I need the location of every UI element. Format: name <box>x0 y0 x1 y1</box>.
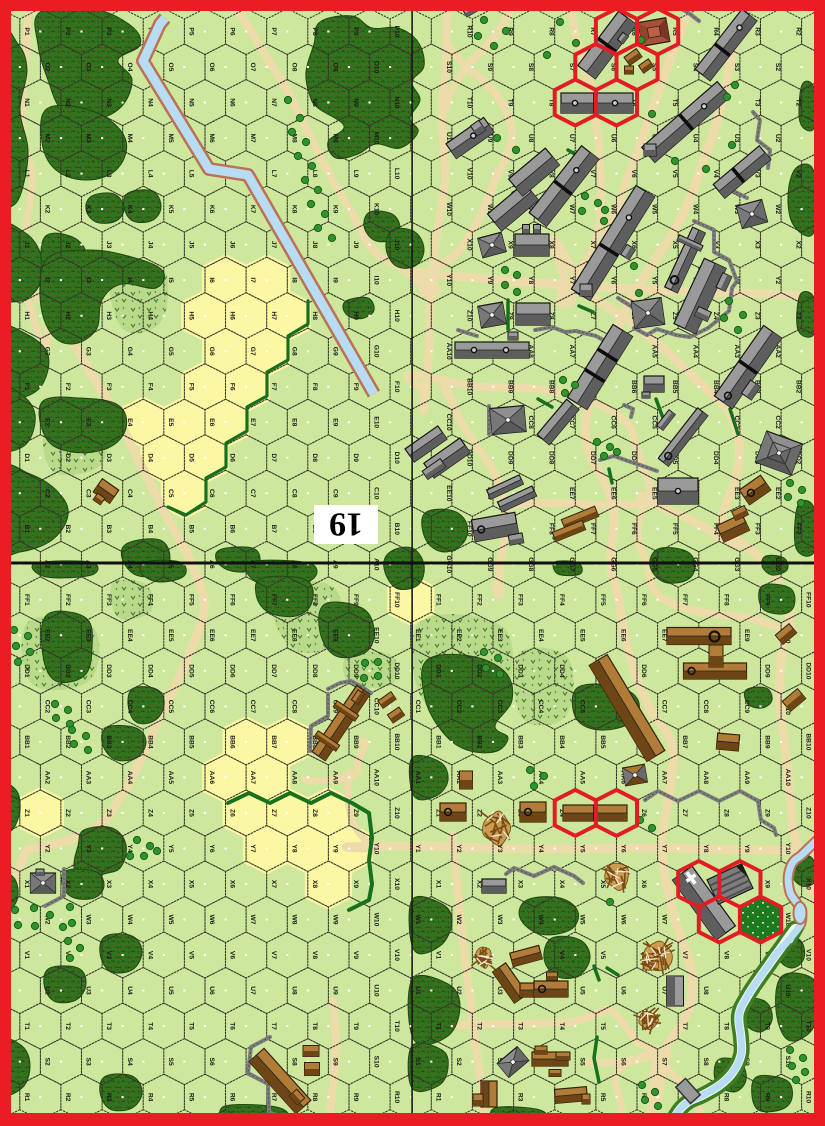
svg-text:X1: X1 <box>23 880 30 888</box>
svg-text:S10: S10 <box>373 1056 380 1068</box>
svg-text:W1: W1 <box>414 914 421 924</box>
svg-text:Y10: Y10 <box>373 843 380 855</box>
svg-text:Z7: Z7 <box>270 809 277 817</box>
svg-text:DD5: DD5 <box>187 664 194 678</box>
svg-text:DD7: DD7 <box>589 451 596 465</box>
svg-text:EE3: EE3 <box>733 487 740 500</box>
svg-text:V8: V8 <box>311 951 318 959</box>
svg-text:W5: W5 <box>578 914 585 924</box>
svg-text:N8: N8 <box>311 98 318 107</box>
svg-text:I4: I4 <box>126 277 133 283</box>
svg-text:C3: C3 <box>85 489 92 498</box>
svg-text:R4: R4 <box>712 27 719 36</box>
svg-text:AA9: AA9 <box>332 771 339 785</box>
svg-text:Y7: Y7 <box>661 844 668 852</box>
svg-text:DD4: DD4 <box>146 664 153 678</box>
svg-text:O5: O5 <box>167 63 174 72</box>
svg-text:X3: X3 <box>105 880 112 888</box>
svg-text:EE1: EE1 <box>414 629 421 642</box>
svg-text:S5: S5 <box>578 1058 585 1066</box>
svg-text:D8: D8 <box>311 453 318 462</box>
svg-text:U10: U10 <box>784 984 791 997</box>
svg-text:T4: T4 <box>146 1022 153 1030</box>
svg-text:AA6: AA6 <box>208 771 215 785</box>
svg-text:Y2: Y2 <box>774 276 781 284</box>
svg-text:FF3: FF3 <box>105 594 112 606</box>
svg-text:H8: H8 <box>311 311 318 320</box>
svg-text:U5: U5 <box>167 986 174 995</box>
svg-text:V5: V5 <box>671 170 678 178</box>
svg-text:R1: R1 <box>23 1093 30 1102</box>
svg-text:B10: B10 <box>393 523 400 536</box>
svg-text:S9: S9 <box>486 63 493 71</box>
svg-text:L1: L1 <box>23 170 30 178</box>
svg-text:EE4: EE4 <box>537 629 544 642</box>
svg-text:FF5: FF5 <box>671 523 678 535</box>
svg-text:H10: H10 <box>393 310 400 323</box>
svg-text:W10: W10 <box>445 202 452 216</box>
svg-text:X9: X9 <box>352 880 359 888</box>
svg-text:S2: S2 <box>455 1058 462 1066</box>
svg-text:DD4: DD4 <box>712 451 719 465</box>
svg-text:H3: H3 <box>105 311 112 320</box>
svg-text:K4: K4 <box>126 205 133 214</box>
svg-text:BB4: BB4 <box>558 735 565 749</box>
svg-text:D6: D6 <box>229 453 236 462</box>
svg-text:J8: J8 <box>311 241 318 249</box>
svg-text:P8: P8 <box>311 27 318 35</box>
svg-text:FF3: FF3 <box>753 523 760 535</box>
svg-text:U10: U10 <box>373 984 380 997</box>
svg-text:X9: X9 <box>764 880 771 888</box>
svg-text:W3: W3 <box>496 914 503 924</box>
svg-text:V7: V7 <box>681 951 688 959</box>
svg-text:CC6: CC6 <box>609 416 616 430</box>
svg-text:CC9: CC9 <box>743 700 750 714</box>
svg-text:W4: W4 <box>537 914 544 924</box>
svg-text:M5: M5 <box>167 133 174 143</box>
svg-text:Y8: Y8 <box>702 844 709 852</box>
svg-text:FF6: FF6 <box>229 594 236 606</box>
svg-text:E4: E4 <box>126 418 133 426</box>
svg-text:K2: K2 <box>44 205 51 214</box>
svg-text:W3: W3 <box>85 914 92 924</box>
svg-text:U3: U3 <box>496 986 503 995</box>
svg-text:D5: D5 <box>187 453 194 462</box>
svg-text:M2: M2 <box>44 133 51 143</box>
svg-text:DD10: DD10 <box>805 662 812 679</box>
svg-text:X5: X5 <box>187 880 194 888</box>
svg-text:C6: C6 <box>208 489 215 498</box>
svg-text:L5: L5 <box>187 170 194 178</box>
svg-text:O6: O6 <box>208 63 215 72</box>
svg-text:AA5: AA5 <box>651 345 658 359</box>
svg-text:R2: R2 <box>64 1093 71 1102</box>
svg-text:CC8: CC8 <box>702 700 709 714</box>
svg-text:V10: V10 <box>393 949 400 961</box>
svg-text:Y9: Y9 <box>486 276 493 284</box>
svg-text:T2: T2 <box>476 1022 483 1030</box>
svg-text:U9: U9 <box>332 986 339 995</box>
svg-text:U8: U8 <box>290 986 297 995</box>
svg-text:FF6: FF6 <box>640 594 647 606</box>
svg-text:W4: W4 <box>126 914 133 924</box>
svg-text:S3: S3 <box>733 63 740 71</box>
svg-text:R10: R10 <box>465 25 472 38</box>
svg-text:CC3: CC3 <box>85 700 92 714</box>
svg-text:Z6: Z6 <box>229 809 236 817</box>
svg-text:L7: L7 <box>270 170 277 178</box>
svg-text:EE9: EE9 <box>743 629 750 642</box>
svg-text:Y7: Y7 <box>568 276 575 284</box>
svg-text:X2: X2 <box>795 241 802 249</box>
svg-text:AA7: AA7 <box>568 345 575 359</box>
svg-text:W7: W7 <box>568 204 575 214</box>
svg-text:H4: H4 <box>146 311 153 320</box>
svg-text:B4: B4 <box>146 525 153 534</box>
svg-text:L10: L10 <box>393 168 400 180</box>
svg-text:Z5: Z5 <box>187 809 194 817</box>
svg-text:EE3: EE3 <box>85 629 92 642</box>
svg-text:C2: C2 <box>44 489 51 498</box>
svg-text:AA10: AA10 <box>445 343 452 360</box>
svg-text:S1: S1 <box>414 1058 421 1066</box>
svg-text:CC2: CC2 <box>455 700 462 714</box>
svg-text:D9: D9 <box>352 453 359 462</box>
svg-text:O9: O9 <box>332 63 339 72</box>
svg-text:EE9: EE9 <box>332 629 339 642</box>
svg-text:EE2: EE2 <box>44 629 51 642</box>
svg-text:X4: X4 <box>558 880 565 888</box>
svg-text:I3: I3 <box>85 277 92 283</box>
svg-text:DD2: DD2 <box>64 664 71 678</box>
svg-text:BB5: BB5 <box>599 735 606 749</box>
svg-text:U5: U5 <box>578 986 585 995</box>
svg-text:X6: X6 <box>229 880 236 888</box>
svg-text:B6: B6 <box>229 525 236 534</box>
svg-text:N1: N1 <box>23 98 30 107</box>
svg-text:S4: S4 <box>126 1058 133 1066</box>
svg-text:EE6: EE6 <box>208 629 215 642</box>
svg-text:H7: H7 <box>270 311 277 320</box>
svg-text:BB10: BB10 <box>465 378 472 395</box>
svg-text:CC7: CC7 <box>661 700 668 714</box>
svg-text:J5: J5 <box>187 241 194 249</box>
svg-text:R8: R8 <box>548 27 555 36</box>
svg-text:O7: O7 <box>249 63 256 72</box>
svg-text:AA3: AA3 <box>85 771 92 785</box>
svg-text:DD3: DD3 <box>517 664 524 678</box>
svg-text:T3: T3 <box>517 1022 524 1030</box>
svg-text:C9: C9 <box>332 489 339 498</box>
svg-text:T7: T7 <box>270 1022 277 1030</box>
svg-text:Y8: Y8 <box>527 276 534 284</box>
svg-text:Z10: Z10 <box>805 807 812 819</box>
svg-text:AA8: AA8 <box>702 771 709 785</box>
svg-text:R3: R3 <box>517 1093 524 1102</box>
svg-text:K5: K5 <box>167 205 174 214</box>
svg-text:DD10: DD10 <box>393 662 400 679</box>
svg-text:U6: U6 <box>208 986 215 995</box>
svg-text:F3: F3 <box>105 383 112 391</box>
svg-text:FF10: FF10 <box>393 592 400 608</box>
svg-text:J1: J1 <box>23 241 30 249</box>
svg-text:I2: I2 <box>44 277 51 283</box>
svg-text:DD3: DD3 <box>105 664 112 678</box>
svg-text:Y5: Y5 <box>651 276 658 284</box>
svg-text:Y6: Y6 <box>609 276 616 284</box>
svg-text:S5: S5 <box>167 1058 174 1066</box>
svg-text:EE6: EE6 <box>620 629 627 642</box>
svg-text:E6: E6 <box>208 418 215 426</box>
svg-text:EE5: EE5 <box>578 629 585 642</box>
svg-text:T5: T5 <box>671 99 678 107</box>
svg-text:G2: G2 <box>44 347 51 356</box>
svg-text:FF1: FF1 <box>23 594 30 606</box>
svg-text:D4: D4 <box>146 453 153 462</box>
svg-text:CC8: CC8 <box>527 416 534 430</box>
svg-text:P10: P10 <box>393 26 400 38</box>
svg-text:X8: X8 <box>311 880 318 888</box>
svg-text:CC6: CC6 <box>208 700 215 714</box>
svg-text:Y8: Y8 <box>290 844 297 852</box>
svg-text:T9: T9 <box>352 1022 359 1030</box>
svg-text:EE7: EE7 <box>568 487 575 500</box>
svg-text:EE2: EE2 <box>455 629 462 642</box>
svg-text:G3: G3 <box>85 347 92 356</box>
svg-text:T6: T6 <box>229 1022 236 1030</box>
svg-text:G7: G7 <box>249 347 256 356</box>
svg-text:BB7: BB7 <box>681 735 688 749</box>
svg-text:AA3: AA3 <box>733 345 740 359</box>
svg-text:V6: V6 <box>630 170 637 178</box>
svg-text:AA5: AA5 <box>578 771 585 785</box>
svg-text:P3: P3 <box>105 27 112 35</box>
svg-text:D2: D2 <box>64 453 71 462</box>
svg-text:X10: X10 <box>465 239 472 251</box>
svg-text:X5: X5 <box>671 241 678 249</box>
svg-text:W2: W2 <box>455 914 462 924</box>
svg-text:19: 19 <box>329 506 363 543</box>
svg-text:F4: F4 <box>146 383 153 391</box>
svg-text:DD8: DD8 <box>311 664 318 678</box>
svg-text:W7: W7 <box>661 914 668 924</box>
svg-text:C8: C8 <box>290 489 297 498</box>
svg-text:R1: R1 <box>434 1093 441 1102</box>
svg-text:W9: W9 <box>332 914 339 924</box>
svg-text:O2: O2 <box>44 63 51 72</box>
svg-text:Y10: Y10 <box>445 274 452 286</box>
svg-text:F9: F9 <box>352 383 359 391</box>
svg-text:Y5: Y5 <box>167 844 174 852</box>
svg-text:S9: S9 <box>332 1058 339 1066</box>
svg-text:DD6: DD6 <box>229 664 236 678</box>
svg-text:L3: L3 <box>105 170 112 178</box>
svg-text:T5: T5 <box>599 1022 606 1030</box>
svg-text:FF7: FF7 <box>589 523 596 535</box>
svg-text:FF1: FF1 <box>434 594 441 606</box>
svg-text:FF8: FF8 <box>311 594 318 606</box>
svg-text:T1: T1 <box>434 1022 441 1030</box>
svg-text:K3: K3 <box>85 205 92 214</box>
svg-text:M7: M7 <box>249 133 256 143</box>
svg-text:BB8: BB8 <box>548 380 555 394</box>
svg-text:AA9: AA9 <box>743 771 750 785</box>
svg-text:FF2: FF2 <box>476 594 483 606</box>
svg-text:CC8: CC8 <box>290 700 297 714</box>
svg-text:J10: J10 <box>393 239 400 250</box>
svg-text:S6: S6 <box>208 1058 215 1066</box>
svg-text:R8: R8 <box>311 1093 318 1102</box>
svg-text:L9: L9 <box>352 170 359 178</box>
svg-text:N3: N3 <box>105 98 112 107</box>
svg-text:N10: N10 <box>393 96 400 109</box>
svg-text:T10: T10 <box>393 1020 400 1032</box>
svg-text:AA2: AA2 <box>44 771 51 785</box>
svg-text:D10: D10 <box>393 452 400 465</box>
svg-text:AA8: AA8 <box>290 771 297 785</box>
svg-text:R3: R3 <box>105 1093 112 1102</box>
svg-text:CC1: CC1 <box>414 700 421 714</box>
svg-text:DD4: DD4 <box>558 664 565 678</box>
svg-text:V1: V1 <box>434 951 441 959</box>
svg-text:EE3: EE3 <box>496 629 503 642</box>
svg-text:G8: G8 <box>290 347 297 356</box>
svg-text:E5: E5 <box>167 418 174 426</box>
svg-text:X1: X1 <box>434 880 441 888</box>
svg-text:EE5: EE5 <box>167 629 174 642</box>
svg-text:CC3: CC3 <box>496 700 503 714</box>
svg-text:BB5: BB5 <box>187 735 194 749</box>
svg-text:N4: N4 <box>146 98 153 107</box>
svg-text:DD1: DD1 <box>434 664 441 678</box>
svg-text:J6: J6 <box>229 241 236 249</box>
svg-text:B7: B7 <box>270 525 277 534</box>
svg-text:B5: B5 <box>187 525 194 534</box>
svg-text:CC2: CC2 <box>44 700 51 714</box>
svg-text:F2: F2 <box>64 383 71 391</box>
svg-text:B3: B3 <box>105 525 112 534</box>
svg-text:U6: U6 <box>620 986 627 995</box>
svg-text:U1: U1 <box>414 986 421 995</box>
svg-text:FF9: FF9 <box>764 594 771 606</box>
svg-text:FF4: FF4 <box>146 594 153 606</box>
svg-text:FF7: FF7 <box>270 594 277 606</box>
svg-text:I10: I10 <box>373 275 380 285</box>
svg-text:J2: J2 <box>64 241 71 249</box>
svg-text:R3: R3 <box>753 27 760 36</box>
svg-text:N5: N5 <box>187 98 194 107</box>
svg-text:S2: S2 <box>44 1058 51 1066</box>
svg-text:E10: E10 <box>373 416 380 428</box>
svg-text:P7: P7 <box>270 27 277 35</box>
svg-text:H1: H1 <box>23 311 30 320</box>
svg-text:Z1: Z1 <box>23 809 30 817</box>
svg-text:T4: T4 <box>558 1022 565 1030</box>
svg-text:K7: K7 <box>249 205 256 214</box>
svg-text:V5: V5 <box>187 951 194 959</box>
svg-text:Y10: Y10 <box>784 843 791 855</box>
svg-text:I6: I6 <box>208 277 215 283</box>
svg-text:T2: T2 <box>64 1022 71 1030</box>
svg-text:Z8: Z8 <box>311 809 318 817</box>
svg-text:Y7: Y7 <box>249 844 256 852</box>
svg-text:EE7: EE7 <box>249 629 256 642</box>
svg-text:I7: I7 <box>249 277 256 283</box>
svg-text:EE6: EE6 <box>609 487 616 500</box>
svg-text:EE5: EE5 <box>651 487 658 500</box>
svg-text:S8: S8 <box>702 1058 709 1066</box>
svg-text:S8: S8 <box>527 63 534 71</box>
svg-text:S7: S7 <box>661 1058 668 1066</box>
svg-text:G9: G9 <box>332 347 339 356</box>
svg-text:AA1: AA1 <box>414 771 421 785</box>
svg-text:H6: H6 <box>229 311 236 320</box>
svg-text:K6: K6 <box>208 205 215 214</box>
svg-text:V4: V4 <box>558 951 565 959</box>
svg-text:V9: V9 <box>352 951 359 959</box>
svg-text:R5: R5 <box>599 1093 606 1102</box>
svg-text:X3: X3 <box>753 241 760 249</box>
svg-text:AA7: AA7 <box>249 771 256 785</box>
svg-text:T7: T7 <box>681 1022 688 1030</box>
svg-text:O3: O3 <box>85 63 92 72</box>
svg-text:Y6: Y6 <box>208 844 215 852</box>
svg-text:Z7: Z7 <box>681 809 688 817</box>
svg-text:B2: B2 <box>64 525 71 534</box>
svg-text:CC4: CC4 <box>537 700 544 714</box>
svg-text:L8: L8 <box>311 170 318 178</box>
svg-text:FF5: FF5 <box>599 594 606 606</box>
svg-text:E7: E7 <box>249 418 256 426</box>
svg-text:Z2: Z2 <box>795 312 802 320</box>
svg-text:Z3: Z3 <box>753 312 760 320</box>
svg-text:S2: S2 <box>774 63 781 71</box>
svg-text:U3: U3 <box>733 134 740 143</box>
svg-text:P5: P5 <box>187 27 194 35</box>
svg-text:W6: W6 <box>620 914 627 924</box>
svg-text:J9: J9 <box>352 241 359 249</box>
svg-text:M9: M9 <box>332 133 339 143</box>
svg-text:FF2: FF2 <box>64 594 71 606</box>
svg-text:DD9: DD9 <box>352 664 359 678</box>
svg-text:H9: H9 <box>352 311 359 320</box>
svg-text:Z3: Z3 <box>105 809 112 817</box>
svg-text:EE8: EE8 <box>290 629 297 642</box>
svg-text:I5: I5 <box>167 277 174 283</box>
svg-text:Y9: Y9 <box>743 844 750 852</box>
svg-text:BB6: BB6 <box>229 735 236 749</box>
svg-text:FF9: FF9 <box>352 594 359 606</box>
svg-text:X7: X7 <box>270 880 277 888</box>
svg-text:E3: E3 <box>85 418 92 426</box>
svg-text:V6: V6 <box>229 951 236 959</box>
svg-text:N6: N6 <box>229 98 236 107</box>
svg-text:W5: W5 <box>167 914 174 924</box>
svg-text:S8: S8 <box>290 1058 297 1066</box>
svg-text:P6: P6 <box>229 27 236 35</box>
svg-text:U7: U7 <box>568 134 575 143</box>
svg-text:AA5: AA5 <box>167 771 174 785</box>
svg-text:R7: R7 <box>270 1093 277 1102</box>
svg-text:V10: V10 <box>465 168 472 180</box>
svg-text:E2: E2 <box>44 418 51 426</box>
svg-text:J3: J3 <box>105 241 112 249</box>
svg-text:P2: P2 <box>64 27 71 35</box>
svg-text:CC7: CC7 <box>249 700 256 714</box>
svg-text:AA10: AA10 <box>784 769 791 786</box>
svg-text:BB4: BB4 <box>146 735 153 749</box>
